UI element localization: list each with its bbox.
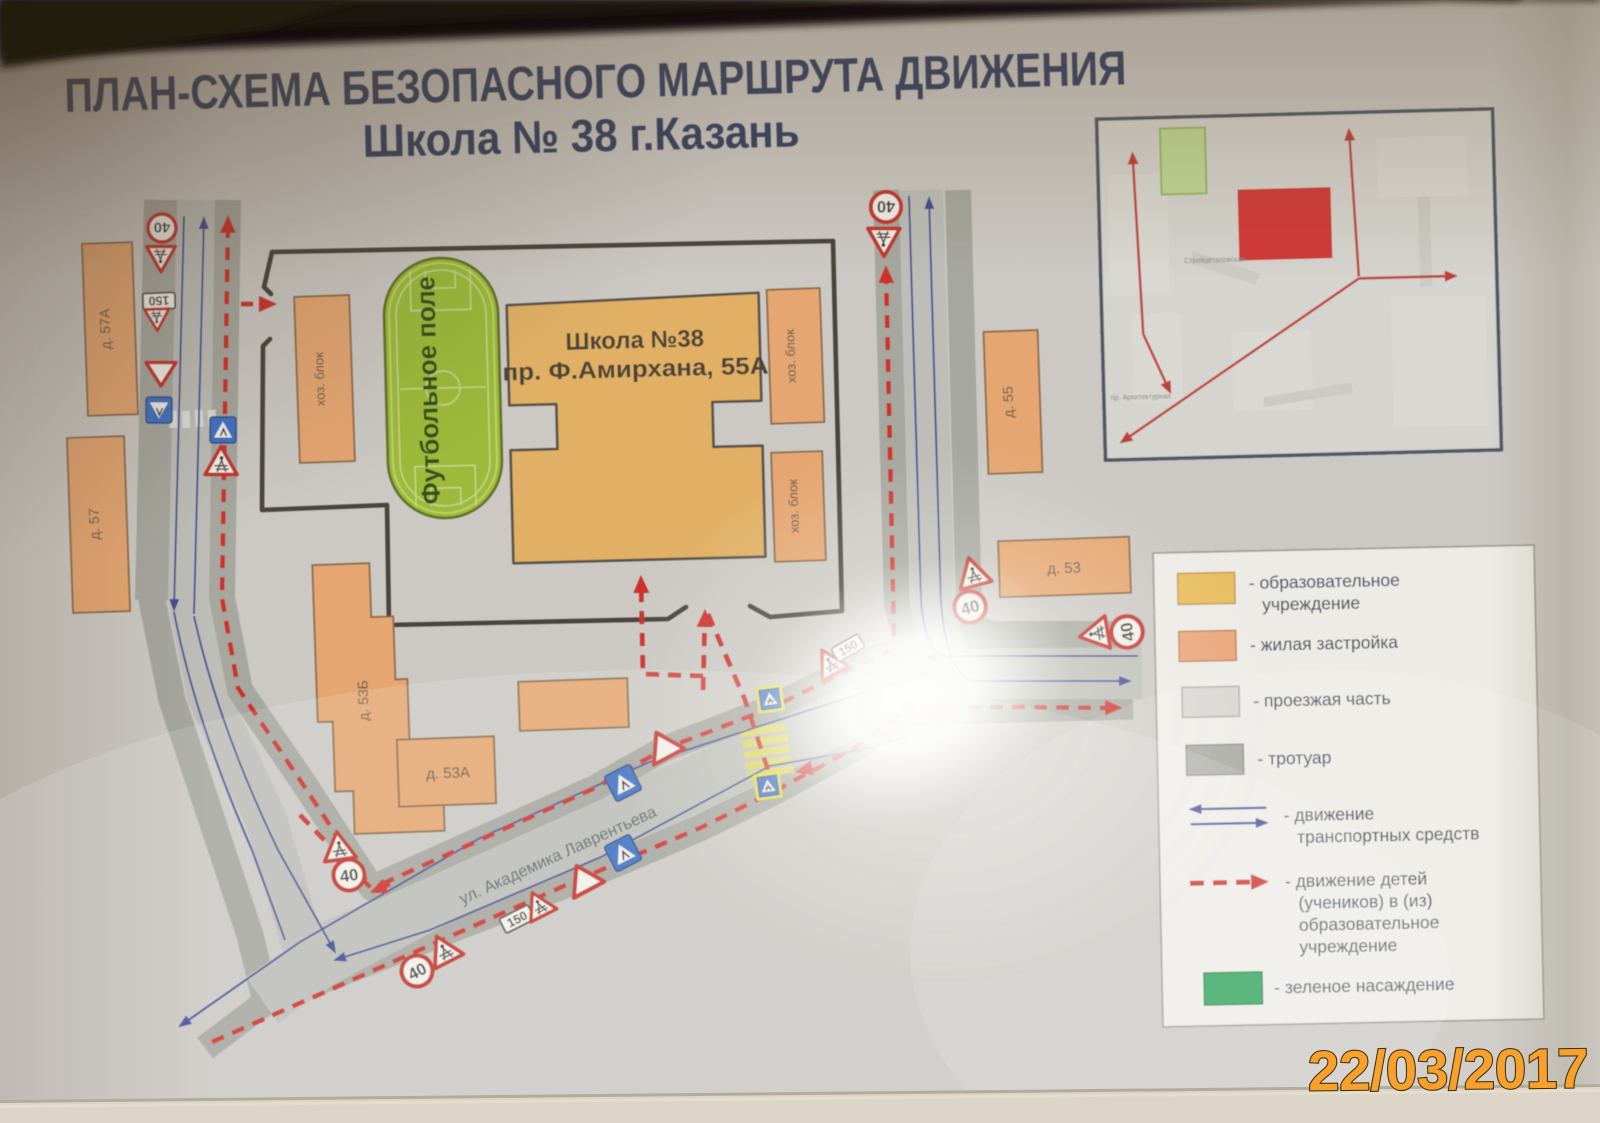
- svg-text:22/03/2017: 22/03/2017: [1308, 1036, 1589, 1102]
